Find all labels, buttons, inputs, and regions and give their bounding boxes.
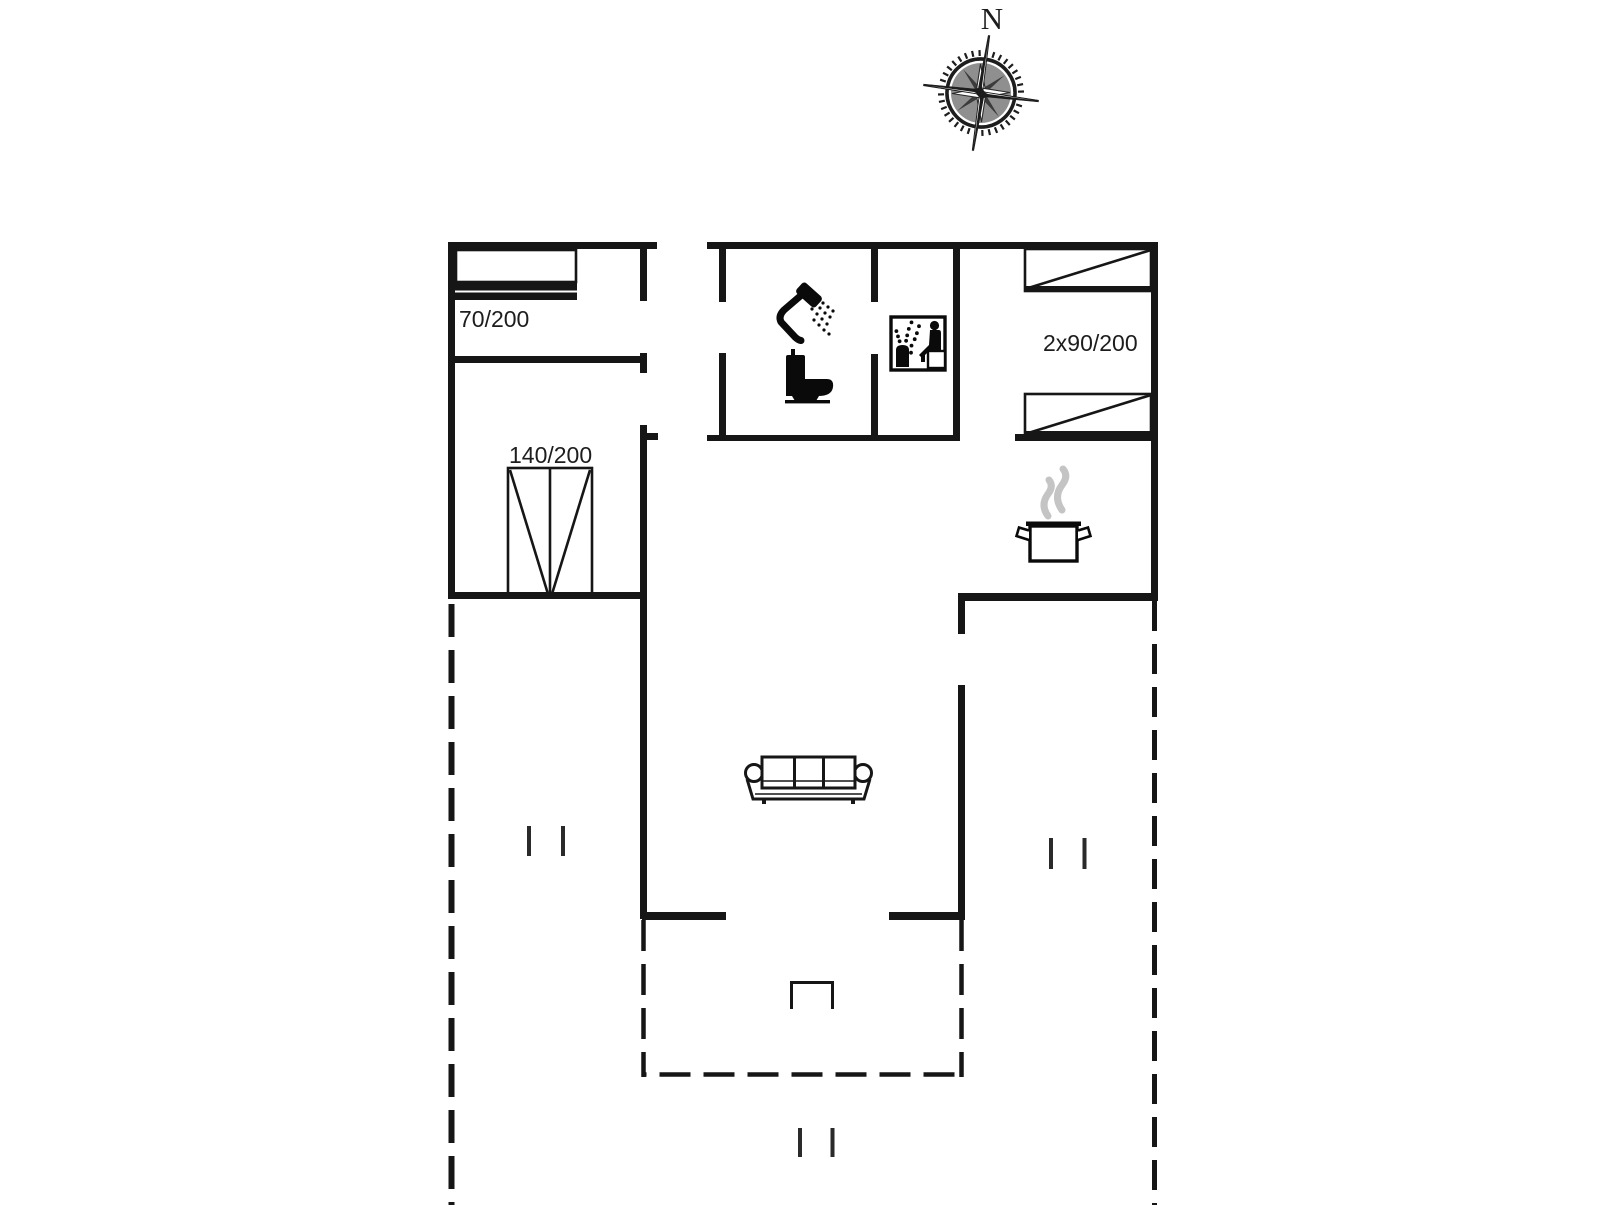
- svg-text:140/200: 140/200: [509, 442, 592, 468]
- svg-text:N: N: [981, 1, 1003, 36]
- svg-text:70/200: 70/200: [459, 306, 529, 332]
- svg-text:2x90/200: 2x90/200: [1043, 330, 1138, 356]
